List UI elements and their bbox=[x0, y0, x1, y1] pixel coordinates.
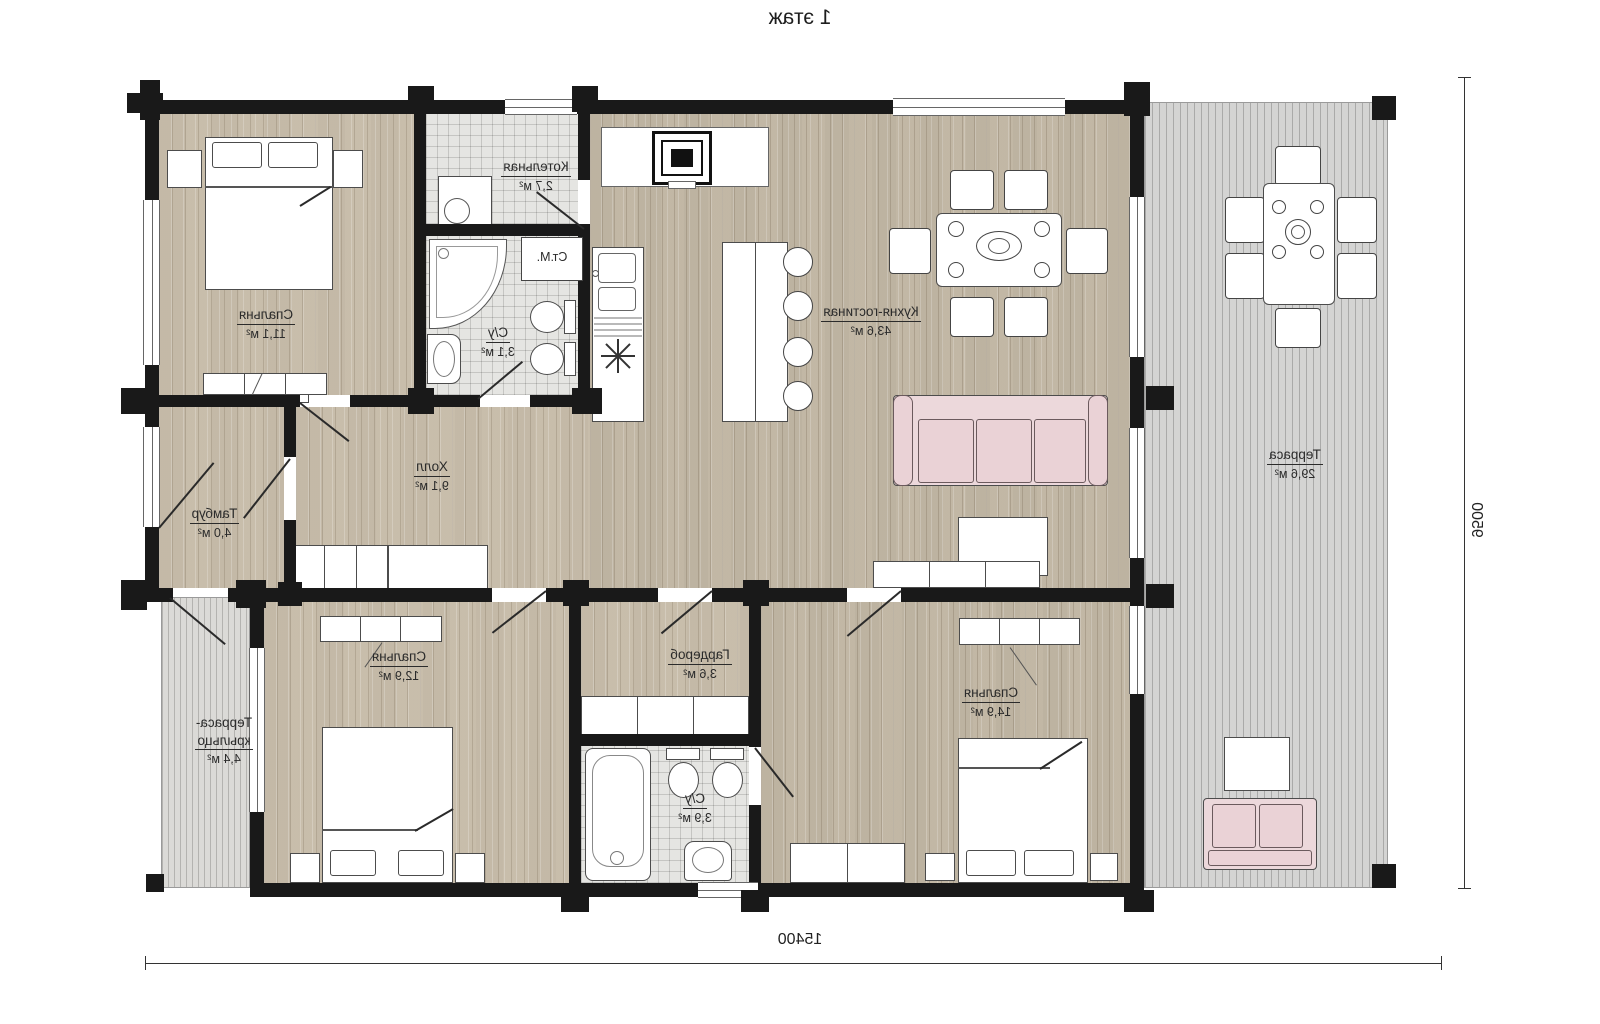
shower-head bbox=[438, 248, 449, 259]
label-washer: Ст.М. bbox=[521, 249, 583, 265]
divider bbox=[400, 617, 401, 641]
terrace-door bbox=[1129, 197, 1145, 357]
plate bbox=[1034, 221, 1050, 237]
dining-chair bbox=[950, 297, 994, 337]
wall bbox=[414, 100, 426, 407]
floor-plan: Спальня 11,1 м² Котельная 2,7 м² С/у 3,1… bbox=[0, 0, 1600, 1024]
window bbox=[1129, 428, 1145, 558]
log-end bbox=[1124, 82, 1150, 116]
dining-chair bbox=[950, 170, 994, 210]
nightstand bbox=[167, 150, 202, 188]
rarea: 9,1 м² bbox=[390, 477, 474, 494]
wall bbox=[284, 395, 296, 457]
hall-cabinet bbox=[292, 545, 388, 589]
dining-chair bbox=[1066, 228, 1108, 274]
divider bbox=[324, 546, 325, 588]
log-end bbox=[1124, 890, 1154, 912]
blanket-line bbox=[205, 186, 333, 188]
rarea: 3,6 м² bbox=[652, 665, 748, 682]
divider bbox=[755, 243, 756, 421]
fireplace-door bbox=[668, 181, 696, 189]
divider bbox=[999, 619, 1000, 644]
divider bbox=[985, 562, 986, 587]
rname: Терраса bbox=[1267, 446, 1323, 465]
toilet-tank bbox=[666, 748, 700, 760]
entry-door-gap bbox=[143, 427, 160, 527]
wardrobe-unit bbox=[581, 696, 749, 736]
pillow bbox=[398, 850, 444, 876]
shape: Ст.М. bbox=[537, 250, 568, 264]
dimension-height: 9500 bbox=[1465, 475, 1485, 565]
dimline bbox=[1458, 77, 1471, 78]
room-label-boiler: Котельная 2,7 м² bbox=[488, 158, 584, 194]
divider bbox=[693, 697, 694, 735]
rname: Тамбур bbox=[190, 505, 240, 524]
log-end bbox=[743, 580, 769, 606]
window bbox=[893, 98, 1065, 116]
sofa-cushion bbox=[976, 419, 1032, 483]
fireplace-core bbox=[671, 149, 693, 167]
pillow bbox=[268, 142, 318, 168]
tv-console bbox=[873, 561, 1040, 588]
pillow bbox=[1024, 850, 1074, 876]
room-label-bedroom-top: Спальня 11,1 м² bbox=[228, 306, 304, 342]
rarea: 4,0 м² bbox=[172, 524, 257, 541]
dimline bbox=[1441, 956, 1442, 970]
plate bbox=[1310, 200, 1324, 214]
bidet-bowl bbox=[530, 343, 564, 375]
log-end bbox=[121, 388, 147, 414]
dimension-width: 15400 bbox=[745, 931, 855, 953]
room-label-porch: Терраса- крыльцо 4,4 м² bbox=[184, 714, 264, 767]
dresser bbox=[959, 618, 1080, 645]
sink-bowl bbox=[692, 847, 724, 873]
floor-tambur bbox=[159, 407, 284, 588]
dishwasher bbox=[594, 315, 642, 337]
rname: Спальня bbox=[962, 684, 1020, 703]
log-end bbox=[408, 86, 434, 112]
rname: крыльцо bbox=[195, 732, 252, 751]
room-label-bath-small: С/у 3,1 м² bbox=[466, 324, 530, 360]
wall bbox=[250, 883, 1144, 897]
divider bbox=[356, 546, 357, 588]
room-label-terrace: Терраса 29,6 м² bbox=[1250, 446, 1340, 482]
dimension-line-bottom bbox=[146, 963, 1442, 964]
pillow bbox=[966, 850, 1016, 876]
room-label-kitchen-living: Кухня-гостиная 43,6 м² bbox=[800, 303, 942, 339]
wall bbox=[414, 224, 590, 236]
plate bbox=[948, 262, 964, 278]
dimline bbox=[1458, 888, 1471, 889]
window bbox=[505, 99, 577, 115]
platter-inner bbox=[988, 238, 1010, 254]
sofa-armrest bbox=[893, 395, 913, 486]
rarea: 43,6 м² bbox=[800, 322, 942, 339]
divider bbox=[637, 697, 638, 735]
room-label-gardrob: Гардероб 3,6 м² bbox=[652, 646, 748, 682]
terrace-chair bbox=[1337, 253, 1377, 299]
bar-stool bbox=[783, 337, 813, 367]
nightstand bbox=[290, 853, 320, 883]
blanket-line bbox=[322, 829, 418, 831]
rname: Спальня bbox=[370, 648, 428, 667]
blanket-line bbox=[958, 767, 1050, 769]
dining-chair bbox=[1004, 170, 1048, 210]
shape: Терраса- bbox=[184, 714, 264, 732]
divider bbox=[360, 617, 361, 641]
log-end bbox=[236, 580, 266, 608]
divider bbox=[847, 844, 848, 882]
log-end bbox=[121, 580, 147, 610]
bathtub-drain bbox=[610, 851, 624, 865]
sofa-cushion bbox=[1212, 804, 1256, 848]
sink-bowl bbox=[433, 341, 455, 377]
rname: С/у bbox=[683, 790, 707, 809]
divider bbox=[1039, 619, 1040, 644]
terrace-chair bbox=[1275, 308, 1321, 348]
wall bbox=[749, 595, 761, 747]
log-end bbox=[140, 80, 160, 120]
rname: Гардероб bbox=[668, 646, 731, 665]
wall bbox=[569, 734, 761, 746]
window bbox=[143, 200, 160, 365]
room-label-tambur: Тамбур 4,0 м² bbox=[172, 505, 257, 541]
wall bbox=[712, 588, 847, 602]
rarea: 4,4 м² bbox=[184, 750, 264, 767]
rname: Холл bbox=[414, 458, 450, 477]
kitchen-sink2 bbox=[598, 287, 636, 311]
nightstand bbox=[455, 853, 485, 883]
dimline bbox=[145, 956, 146, 970]
bar-stool bbox=[783, 381, 813, 411]
toilet-tank bbox=[564, 300, 576, 334]
platter-inner bbox=[1291, 225, 1305, 239]
wall bbox=[901, 588, 1144, 602]
plate bbox=[1272, 245, 1286, 259]
kitchen-sink bbox=[598, 253, 636, 283]
rarea: 14,9 м² bbox=[948, 703, 1034, 720]
rname: Котельная bbox=[501, 158, 570, 177]
divider bbox=[285, 374, 286, 394]
wall bbox=[228, 588, 492, 602]
pillow bbox=[212, 142, 262, 168]
nightstand bbox=[1090, 853, 1118, 881]
log-end bbox=[1146, 386, 1174, 410]
log-end bbox=[572, 388, 602, 414]
terrace-post bbox=[1372, 864, 1396, 888]
pillow bbox=[330, 850, 376, 876]
room-label-bath-big: С/у 3,9 м² bbox=[652, 790, 738, 826]
rname: Спальня bbox=[237, 306, 295, 325]
rarea: 3,1 м² bbox=[466, 343, 530, 360]
wall bbox=[145, 395, 300, 407]
divider bbox=[929, 562, 930, 587]
sofa-cushion bbox=[918, 419, 974, 483]
log-end bbox=[563, 580, 589, 606]
log-end bbox=[572, 86, 598, 112]
wardrobe bbox=[203, 373, 327, 395]
log-end bbox=[561, 890, 589, 912]
log-end bbox=[146, 874, 164, 892]
plate bbox=[948, 221, 964, 237]
page-title: 1 этаж bbox=[715, 6, 885, 30]
plate bbox=[1034, 262, 1050, 278]
rarea: 3,9 м² bbox=[652, 809, 738, 826]
faucet bbox=[592, 270, 599, 277]
sofa-armrest bbox=[1088, 395, 1108, 486]
log-end bbox=[146, 588, 164, 602]
room-label-bedroom-left: Спальня 12,9 м² bbox=[355, 648, 443, 684]
nightstand bbox=[333, 150, 363, 188]
terrace-chair bbox=[1337, 197, 1377, 243]
hall-bench bbox=[388, 545, 488, 589]
dining-chair bbox=[889, 228, 931, 274]
wall bbox=[569, 595, 581, 897]
sofa-back bbox=[1208, 850, 1312, 866]
divider bbox=[244, 374, 245, 394]
terrace-chair bbox=[1225, 253, 1265, 299]
toilet-bowl bbox=[530, 301, 564, 333]
toilet-tank bbox=[710, 748, 744, 760]
boiler-dial bbox=[444, 198, 470, 224]
plate bbox=[1272, 200, 1286, 214]
terrace-chair bbox=[1225, 197, 1265, 243]
rarea: 11,1 м² bbox=[228, 325, 304, 342]
window bbox=[1129, 606, 1145, 694]
dining-chair bbox=[1004, 297, 1048, 337]
plate bbox=[1310, 245, 1324, 259]
log-end bbox=[408, 388, 434, 414]
terrace-post bbox=[1372, 96, 1396, 120]
log-end bbox=[741, 890, 769, 912]
log-end bbox=[1146, 584, 1174, 608]
log-end bbox=[278, 582, 302, 606]
room-label-bedroom-right: Спальня 14,9 м² bbox=[948, 684, 1034, 720]
rname: Кухня-гостиная bbox=[821, 303, 921, 322]
rarea: 2,7 м² bbox=[488, 177, 584, 194]
room-label-hall: Холл 9,1 м² bbox=[390, 458, 474, 494]
sofa-cushion bbox=[1034, 419, 1086, 483]
rname: С/у bbox=[486, 324, 510, 343]
rarea: 12,9 м² bbox=[355, 667, 443, 684]
terrace-side-table bbox=[1224, 737, 1290, 791]
nightstand bbox=[925, 853, 955, 881]
bar-stool bbox=[783, 247, 813, 277]
wardrobe bbox=[320, 616, 442, 642]
bidet-tank bbox=[564, 342, 576, 376]
rarea: 29,6 м² bbox=[1250, 465, 1340, 482]
sofa-cushion bbox=[1259, 804, 1303, 848]
terrace-chair bbox=[1275, 146, 1321, 186]
